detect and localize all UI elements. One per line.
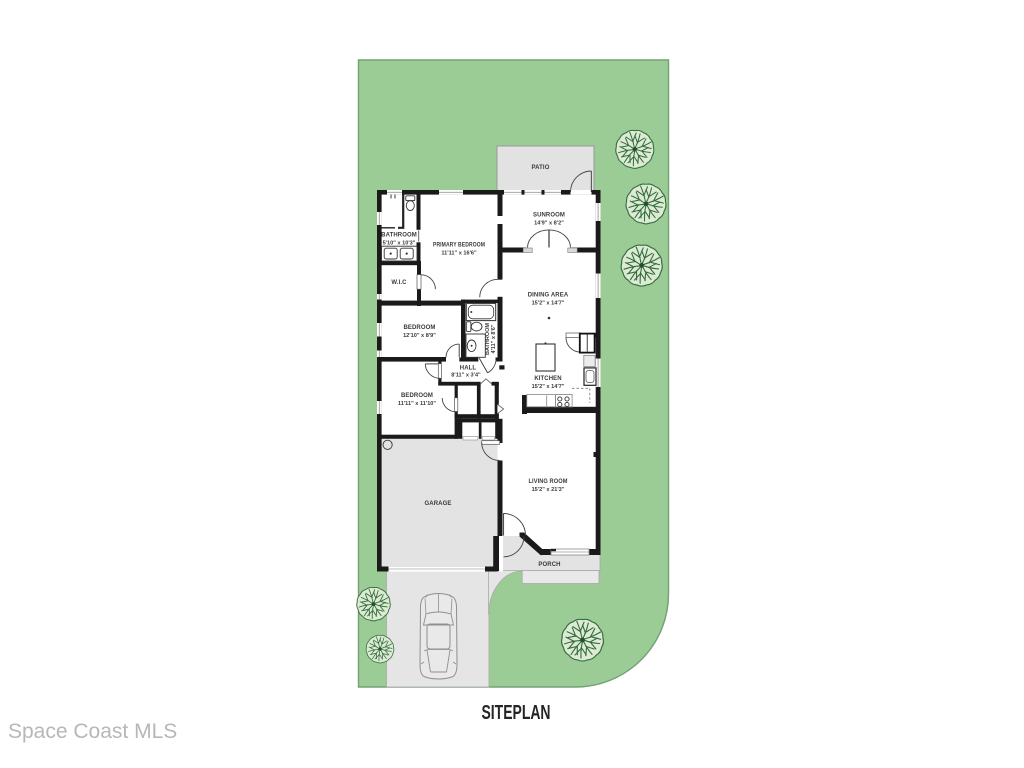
svg-text:PRIMARY BEDROOM: PRIMARY BEDROOM — [433, 243, 485, 249]
svg-text:Space Coast MLS: Space Coast MLS — [8, 720, 177, 743]
svg-text:PATIO: PATIO — [532, 165, 550, 171]
svg-text:11'11" x 16'6": 11'11" x 16'6" — [441, 251, 477, 257]
svg-text:BATHROOM: BATHROOM — [381, 233, 417, 239]
svg-text:LIVING ROOM: LIVING ROOM — [529, 479, 568, 485]
svg-text:5'10" x 10'3": 5'10" x 10'3" — [383, 241, 416, 247]
svg-text:W.I.C: W.I.C — [391, 280, 407, 286]
svg-text:KITCHEN: KITCHEN — [534, 376, 561, 382]
svg-text:SUNROOM: SUNROOM — [533, 213, 565, 219]
svg-text:15'2" x 21'3": 15'2" x 21'3" — [532, 487, 565, 493]
svg-text:BEDROOM: BEDROOM — [401, 393, 433, 399]
svg-text:14'9" x 8'2": 14'9" x 8'2" — [534, 221, 564, 227]
svg-text:HALL: HALL — [460, 366, 477, 372]
svg-text:8'11" x 3'4": 8'11" x 3'4" — [451, 373, 481, 379]
svg-text:15'2" x 14'7": 15'2" x 14'7" — [532, 301, 565, 307]
svg-text:15'2" x 14'7": 15'2" x 14'7" — [532, 384, 565, 390]
svg-text:DINING AREA: DINING AREA — [528, 293, 569, 299]
svg-text:PORCH: PORCH — [538, 562, 560, 568]
svg-text:11'11" x 11'10": 11'11" x 11'10" — [398, 401, 436, 407]
svg-text:12'10" x 8'9": 12'10" x 8'9" — [403, 333, 436, 339]
svg-text:4'11" x 8'6": 4'11" x 8'6" — [491, 324, 497, 353]
svg-text:GARAGE: GARAGE — [425, 501, 452, 507]
svg-text:BEDROOM: BEDROOM — [403, 325, 435, 331]
svg-text:SITEPLAN: SITEPLAN — [482, 702, 551, 724]
